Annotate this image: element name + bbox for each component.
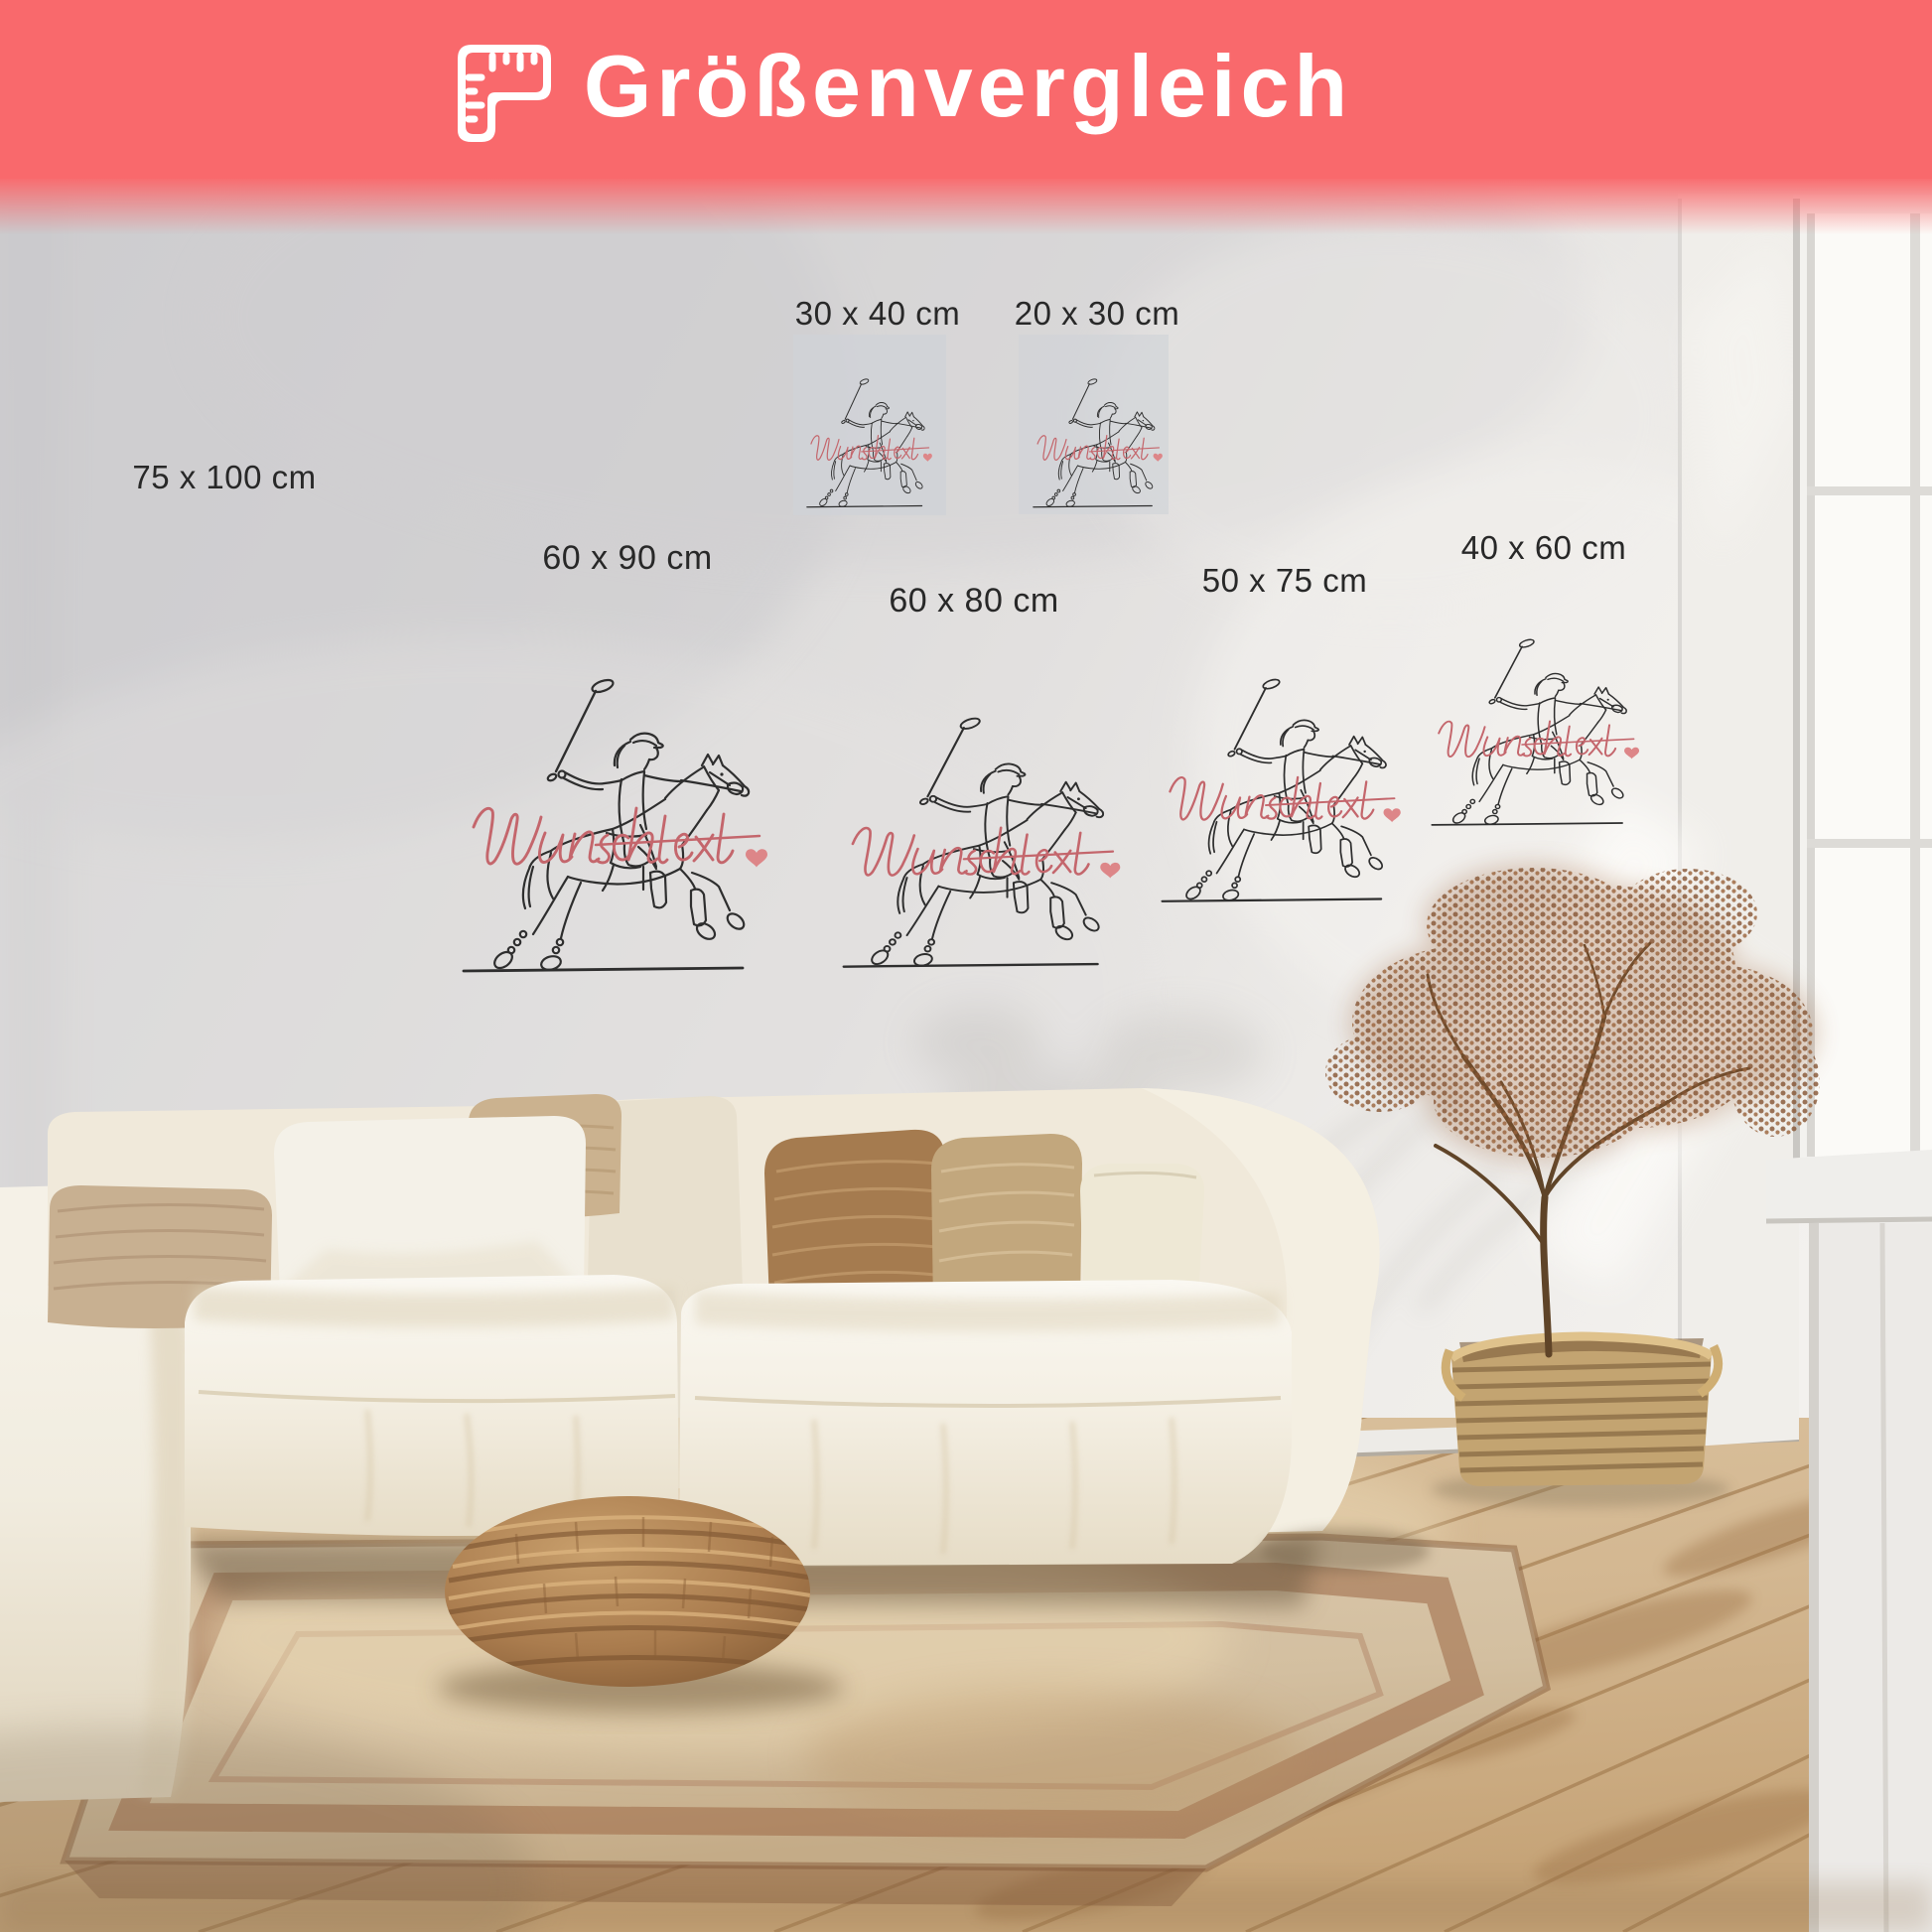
svg-text:50 x 75 cm: 50 x 75 cm bbox=[1202, 562, 1367, 599]
svg-text:40 x 60 cm: 40 x 60 cm bbox=[1461, 529, 1626, 566]
svg-text:Größenvergleich: Größenvergleich bbox=[584, 37, 1352, 135]
svg-text:60 x 90 cm: 60 x 90 cm bbox=[542, 539, 712, 577]
svg-text:20 x 30 cm: 20 x 30 cm bbox=[1015, 295, 1179, 332]
svg-text:30 x 40 cm: 30 x 40 cm bbox=[795, 295, 960, 332]
svg-text:60 x 80 cm: 60 x 80 cm bbox=[889, 582, 1058, 620]
svg-text:75 x 100 cm: 75 x 100 cm bbox=[132, 459, 316, 495]
